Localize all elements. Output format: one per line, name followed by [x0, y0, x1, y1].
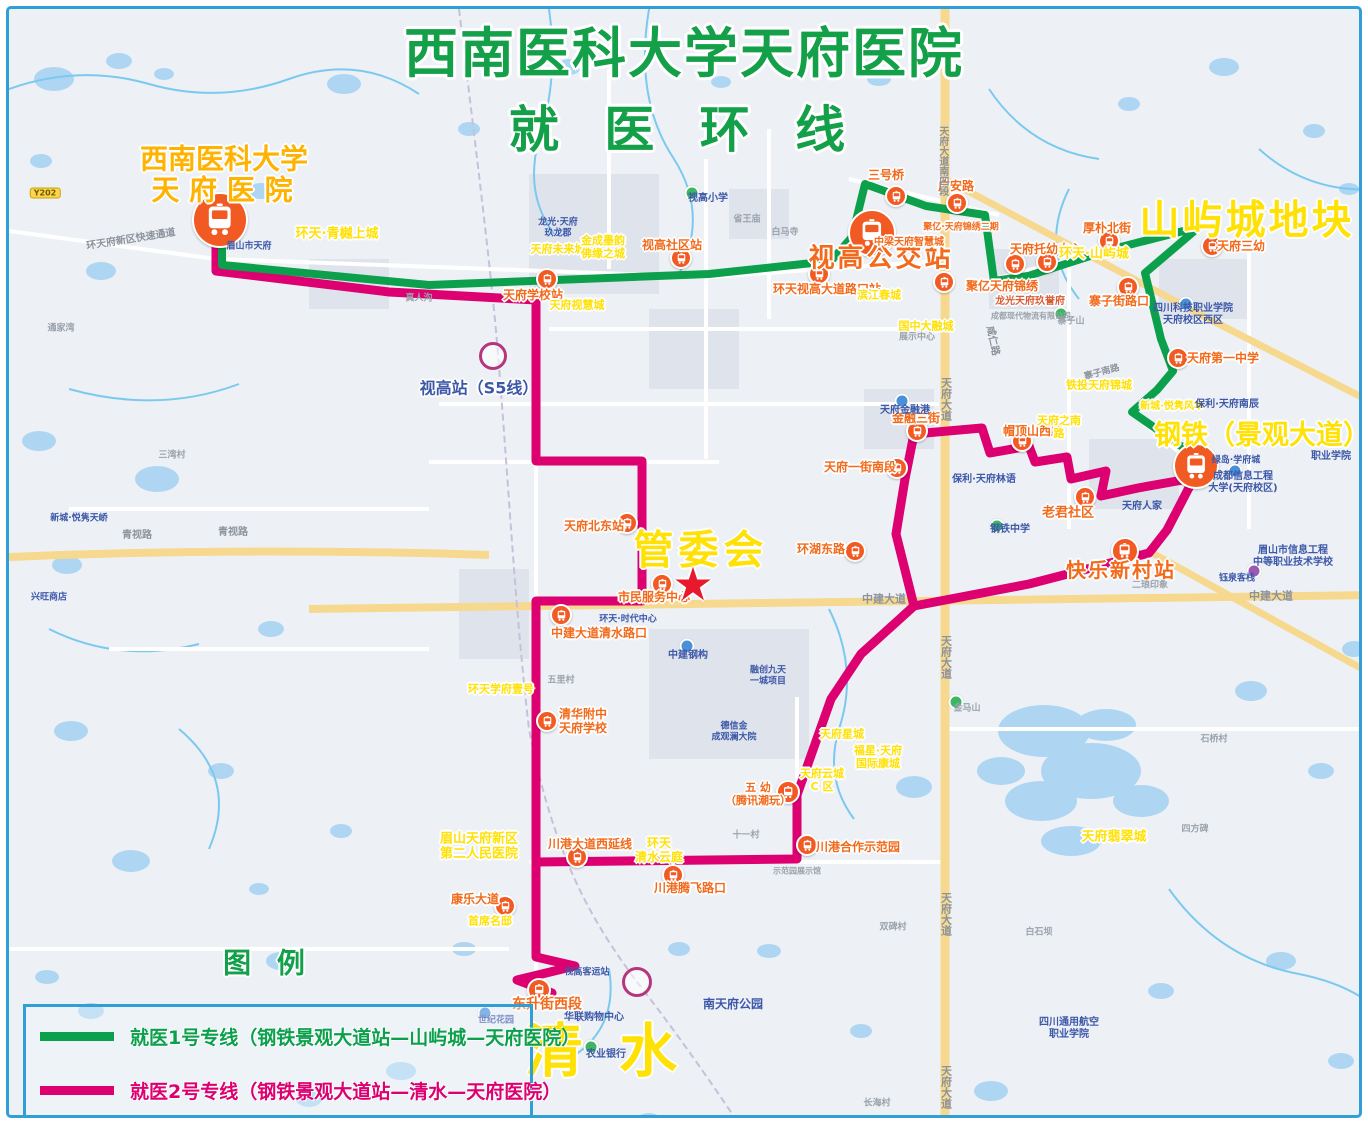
bus-station-icon: [1074, 486, 1096, 508]
bus-station-icon: [776, 780, 800, 804]
poi-dot-icon: [680, 639, 695, 654]
bus-station-icon: [536, 710, 558, 732]
bus-station-icon: [651, 573, 673, 595]
route-map-poster: 西南医科大学天 府 医 院山屿城地块钢铁（景观大道）管委会清 水视高公交站快乐新…: [0, 0, 1368, 1124]
metro-station-ring-icon: [622, 967, 652, 997]
poi-dot-icon: [1228, 464, 1243, 479]
route-2-label: 就医2号专线（钢铁景观大道站—清水—天府医院）: [130, 1077, 561, 1104]
bus-station-icon: [527, 978, 551, 1002]
road-number-badge: Y202: [30, 188, 61, 199]
bus-station-icon: [933, 271, 955, 293]
metro-station-ring-icon: [479, 342, 507, 370]
poi-dot-icon: [895, 394, 910, 409]
bus-station-icon: [192, 192, 248, 248]
bus-station-icon: [1173, 443, 1219, 489]
bus-station-icon: [1004, 253, 1026, 275]
bus-station-icon: [844, 540, 866, 562]
bus-station-icon: [662, 864, 684, 886]
bus-station-icon: [536, 268, 558, 290]
legend-row-route2: 就医2号专线（钢铁景观大道站—清水—天府医院）: [26, 1075, 530, 1105]
bus-station-icon: [566, 846, 588, 868]
bus-station-icon: [1117, 276, 1139, 298]
poi-dot-icon: [1247, 564, 1262, 579]
route-1-line: [222, 184, 1199, 467]
poi-dot-icon: [990, 519, 1005, 534]
bus-station-icon: [1201, 235, 1223, 257]
legend-box: 就医1号专线（钢铁景观大道站—山屿城—天府医院） 就医2号专线（钢铁景观大道站—…: [23, 1004, 533, 1118]
route-2-swatch: [40, 1086, 114, 1095]
bus-station-icon: [1036, 251, 1058, 273]
bus-station-icon: [550, 604, 572, 626]
poi-dot-icon: [685, 186, 700, 201]
bus-station-icon: [796, 834, 818, 856]
bus-station-icon: [494, 895, 516, 917]
bus-station-icon: [946, 192, 968, 214]
bus-station-icon: [1011, 430, 1033, 452]
route-1-swatch: [40, 1032, 114, 1041]
bus-station-icon: [1167, 347, 1189, 369]
poi-dot-icon: [1179, 297, 1194, 312]
bus-station-icon: [1098, 230, 1120, 252]
route-2-line-loop-west: [536, 434, 914, 862]
bus-station-icon: [616, 512, 638, 534]
poi-dot-icon: [949, 695, 964, 710]
map-canvas: 西南医科大学天 府 医 院山屿城地块钢铁（景观大道）管委会清 水视高公交站快乐新…: [6, 6, 1362, 1118]
legend-row-route1: 就医1号专线（钢铁景观大道站—山屿城—天府医院）: [26, 1021, 530, 1051]
committee-star-marker: ★: [672, 557, 713, 611]
bus-station-icon: [808, 263, 830, 285]
bus-station-icon: [1111, 537, 1139, 565]
bus-station-icon: [670, 247, 692, 269]
bus-station-icon: [848, 209, 896, 257]
route-2-line-main: [216, 233, 642, 993]
route-1-label: 就医1号专线（钢铁景观大道站—山屿城—天府医院）: [130, 1023, 580, 1050]
route-2-line-loop-east: [914, 428, 1194, 606]
bus-station-icon: [885, 185, 907, 207]
bus-station-icon: [906, 420, 928, 442]
poi-dot-icon: [584, 1040, 599, 1055]
bus-station-icon: [886, 457, 908, 479]
poi-dot-icon: [1054, 307, 1069, 322]
